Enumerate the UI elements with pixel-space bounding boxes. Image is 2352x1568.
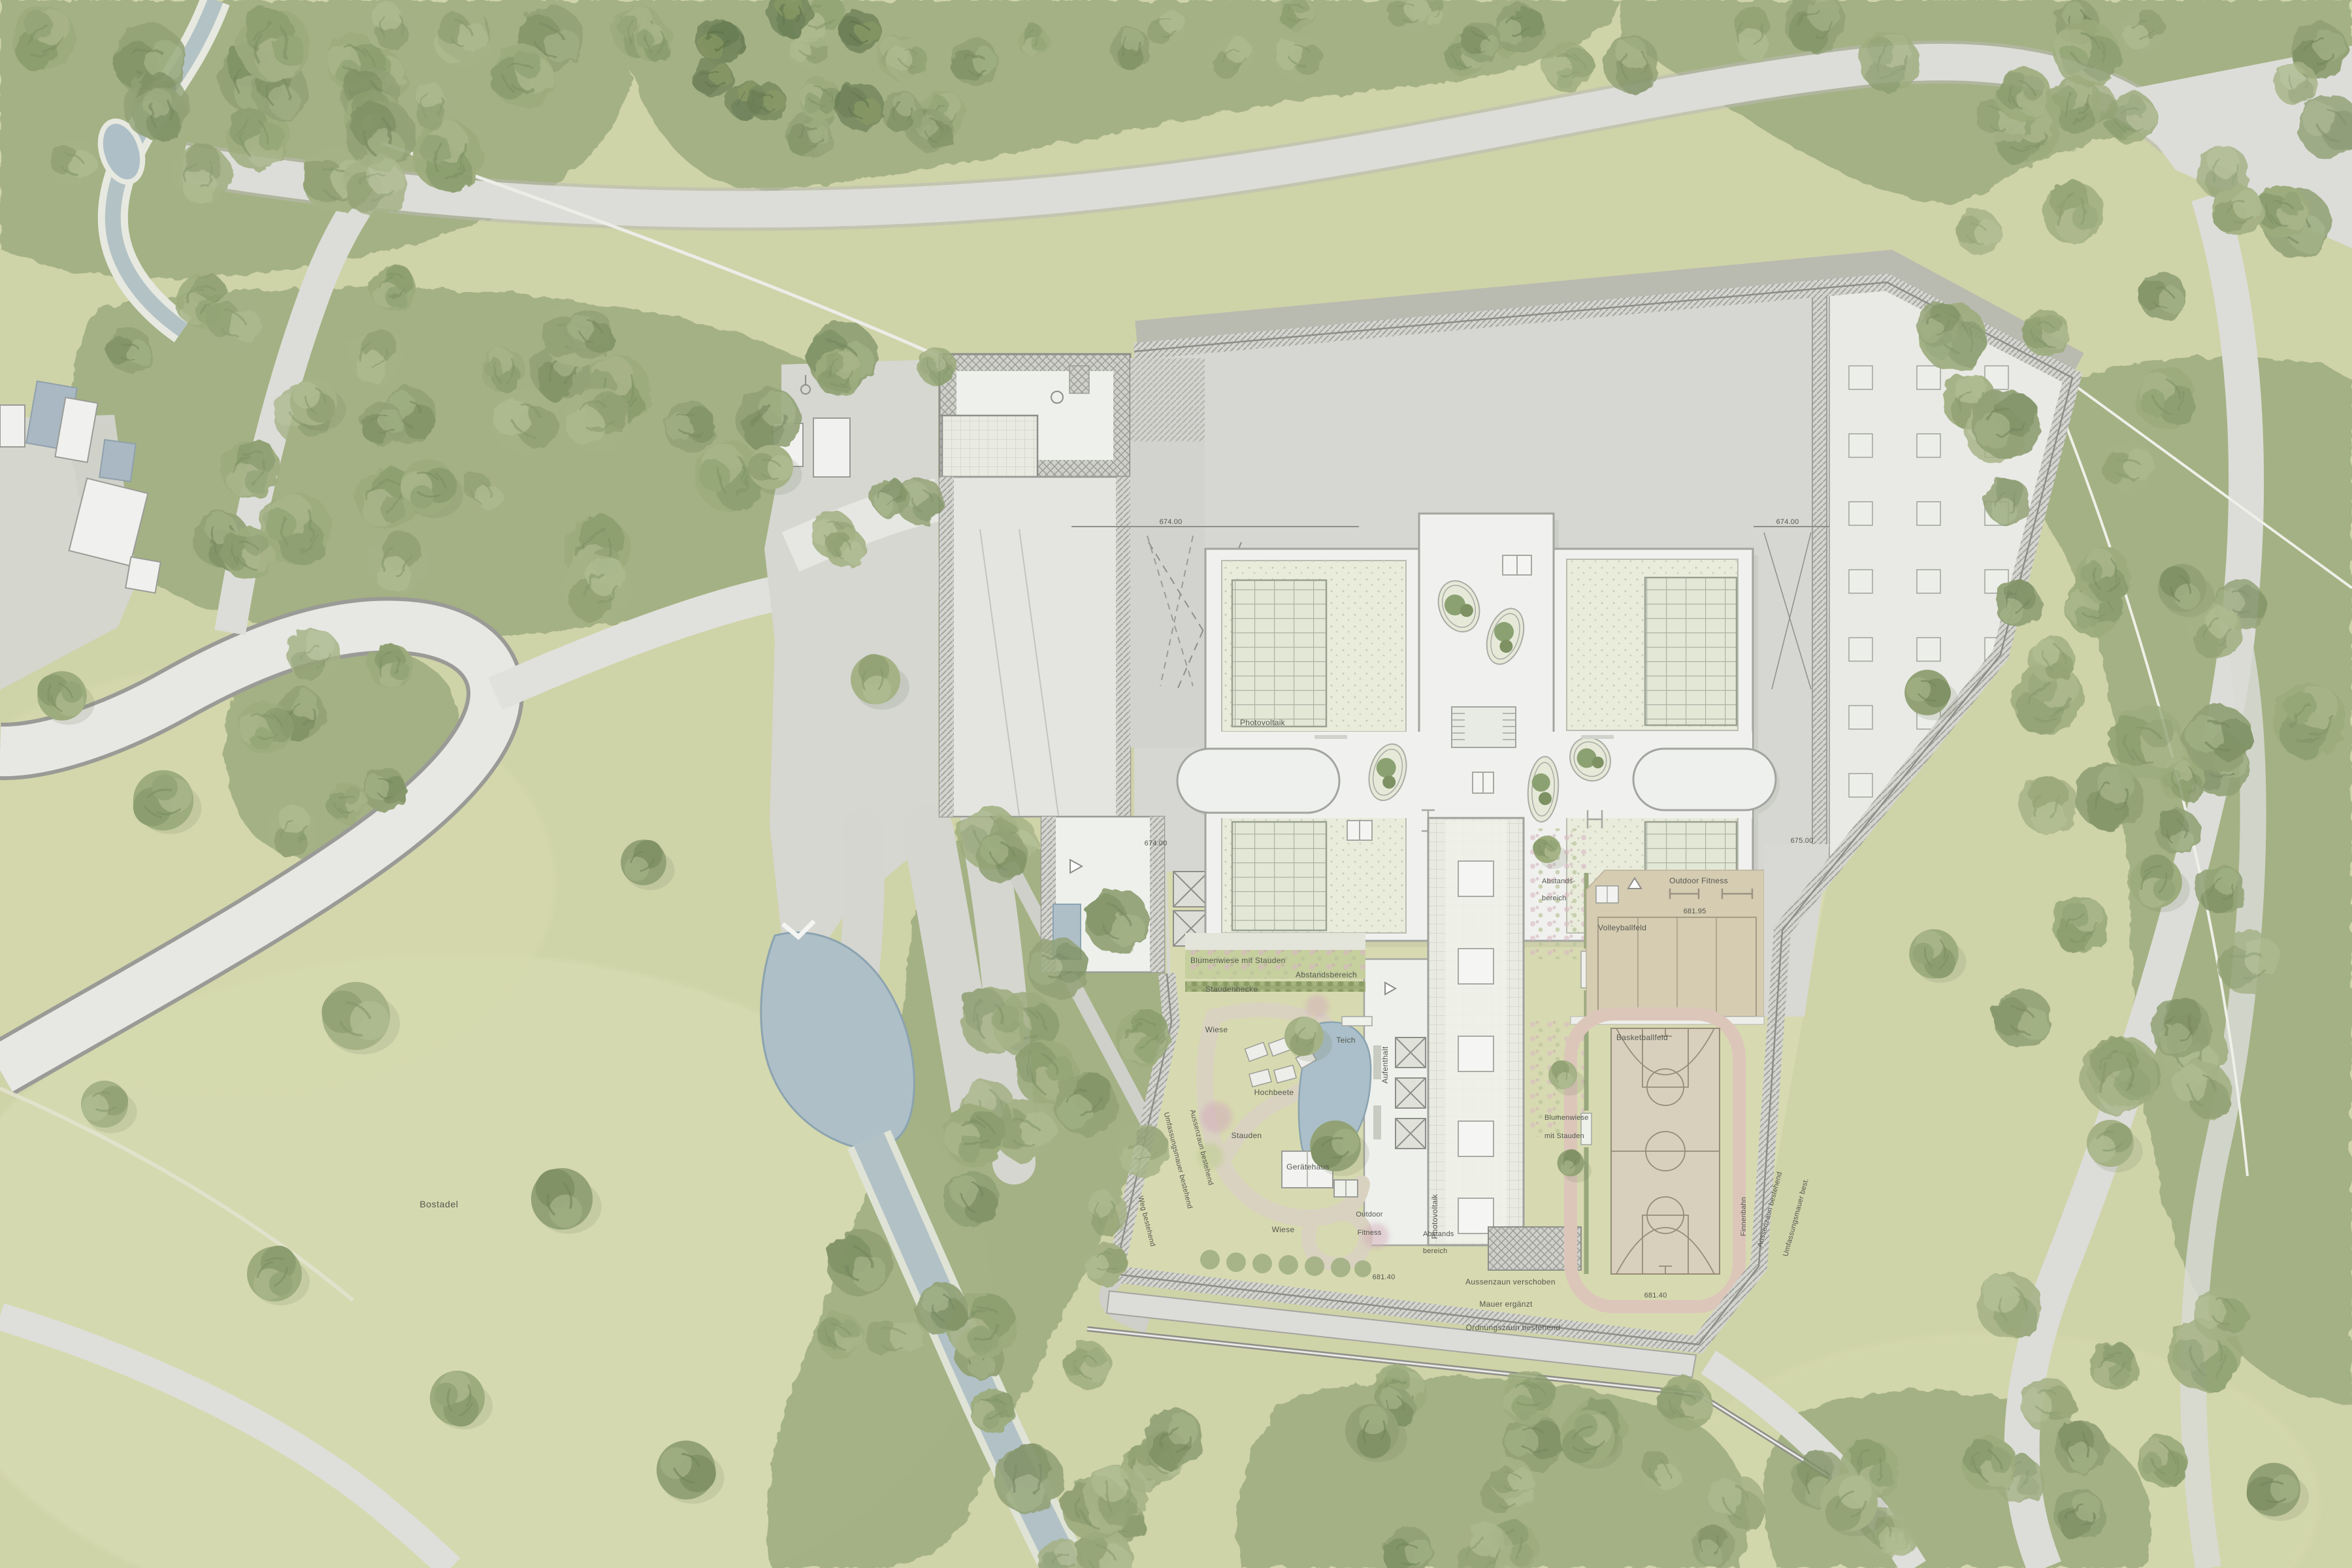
tree-icon <box>133 770 193 830</box>
capsule-west <box>1177 749 1339 813</box>
label-abstandsbereich-e-1: Abstands- <box>1542 877 1575 885</box>
stair-core <box>1452 707 1516 747</box>
elevation-garden: 681.40 <box>1373 1273 1396 1281</box>
label-staudenhecke: Staudenhecke <box>1205 985 1258 994</box>
label-teich: Teich <box>1336 1036 1356 1045</box>
pv-array-nw <box>1232 580 1326 727</box>
tree-icon <box>1494 3 1543 52</box>
label-outdoor-fitness-ne: Outdoor Fitness <box>1669 876 1728 885</box>
label-blumenwiese-e-1: Blumenwiese <box>1544 1114 1589 1122</box>
abstand-gravel-band <box>1185 933 1365 950</box>
gate-shed-2 <box>813 418 850 477</box>
label-wiese-sw: Wiese <box>1272 1225 1295 1234</box>
label-hochbeete: Hochbeete <box>1254 1088 1294 1097</box>
label-outdoor-fitness-garden-2: Fitness <box>1358 1229 1382 1237</box>
label-blumenwiese-e-2: mit Stauden <box>1544 1132 1584 1140</box>
yard-planter <box>1849 366 1872 389</box>
label-wiese-nw: Wiese <box>1205 1025 1228 1034</box>
farm-shed-edge <box>0 405 25 447</box>
pv-array-ne <box>1645 578 1737 725</box>
label-photovoltaik-roof: Photovoltaik <box>1240 718 1286 727</box>
tract-skylight <box>1458 949 1494 984</box>
yard-west-wall-band <box>1812 294 1827 866</box>
capsule-east <box>1633 749 1776 810</box>
tract-skylight <box>1458 1036 1494 1071</box>
yard-planter <box>1917 638 1940 661</box>
entrance-roof-hatch <box>1070 366 1089 393</box>
label-finnenbahn: Finnenbahn <box>1740 1197 1748 1236</box>
site-label: Bostadel <box>419 1199 458 1209</box>
elevation-volleyball: 681.95 <box>1684 907 1707 915</box>
elevation-roof-nw: 674.00 <box>1160 518 1183 526</box>
tract-skylight <box>1458 1121 1494 1156</box>
yard-planter <box>1849 638 1872 661</box>
label-abstandsbereich-e-2: bereich <box>1542 894 1566 902</box>
farm-building-3 <box>125 557 161 593</box>
tract-skylight <box>1458 861 1494 896</box>
label-aufenthalt: Aufenthalt <box>1380 1046 1390 1083</box>
terrace-bench-2 <box>1373 1105 1381 1139</box>
label-outdoor-fitness-garden-1: Outdoor <box>1356 1211 1382 1218</box>
label-blumenwiese-nw: Blumenwiese mit Stauden <box>1190 956 1286 965</box>
site-plan-canvas: Bostadel Photovoltaik 674.00 674.00 674.… <box>0 0 2352 1568</box>
label-abstandsbereich-w-1: Abstands <box>1423 1230 1454 1238</box>
yard-planter <box>1849 706 1872 729</box>
label-abstandsbereich-w-2: bereich <box>1423 1247 1447 1255</box>
elevation-terrace-w: 674.00 <box>1145 840 1168 847</box>
yard-planter <box>1849 774 1872 797</box>
label-volleyballfeld: Volleyballfeld <box>1598 923 1646 932</box>
yard-planter <box>1917 502 1940 525</box>
entrance-grid-annex <box>942 416 1037 477</box>
elevation-roof-ne: 674.00 <box>1776 518 1799 526</box>
label-geraetehaus: Gerätehaus <box>1286 1162 1330 1171</box>
yard-planter <box>1917 434 1940 457</box>
elevation-terrace-e: 675.00 <box>1791 837 1814 845</box>
corridor-hatch-east <box>1116 477 1130 817</box>
yard-planter <box>1849 570 1872 593</box>
elevation-basketball: 681.40 <box>1644 1292 1667 1299</box>
yard-planter <box>1917 366 1940 389</box>
label-basketballfeld: Basketballfeld <box>1616 1033 1668 1042</box>
label-mauer-ergaenzt: Mauer ergänzt <box>1479 1299 1533 1309</box>
yard-planter <box>1849 434 1872 457</box>
label-stauden: Stauden <box>1232 1131 1262 1140</box>
terrace-canopies <box>1396 1037 1426 1149</box>
label-aussenzaun-verschoben: Aussenzaun verschoben <box>1465 1277 1556 1286</box>
label-abstandsbereich-nw: Abstandsbereich <box>1296 970 1357 979</box>
ramp-hatch-top <box>1130 358 1205 442</box>
yard-planter <box>1849 502 1872 525</box>
label-ordnungszaun-bestehend: Ordnungszaun bestehend <box>1466 1323 1561 1332</box>
yard-planter <box>1917 570 1940 593</box>
pv-array-sw <box>1232 822 1326 930</box>
pond-deck <box>1342 1017 1372 1026</box>
corridor-hatch-west <box>939 477 954 817</box>
farm-roof-blue-2 <box>99 440 136 482</box>
